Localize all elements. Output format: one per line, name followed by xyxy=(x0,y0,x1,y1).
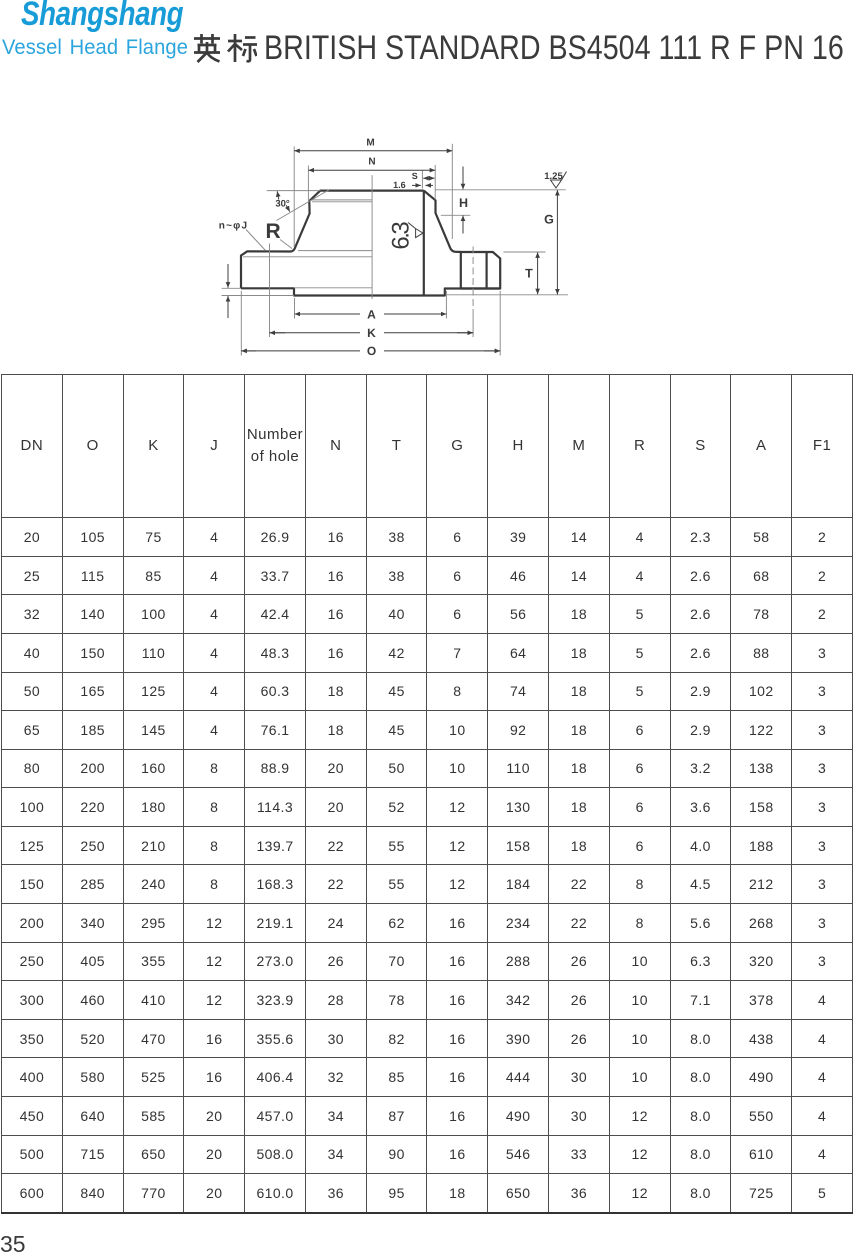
svg-text:N: N xyxy=(368,157,375,168)
svg-text:M: M xyxy=(366,138,374,149)
svg-text:1.6: 1.6 xyxy=(393,180,406,190)
svg-text:O: O xyxy=(367,344,376,358)
svg-text:G: G xyxy=(544,213,554,227)
svg-text:6.3: 6.3 xyxy=(388,222,415,250)
svg-text:30°: 30° xyxy=(275,198,290,209)
svg-text:H: H xyxy=(459,196,468,210)
svg-text:S: S xyxy=(412,171,418,181)
svg-text:K: K xyxy=(367,326,376,340)
svg-text:1.25: 1.25 xyxy=(544,171,563,182)
svg-text:T: T xyxy=(525,267,533,281)
svg-text:R: R xyxy=(266,220,281,243)
svg-text:n~φJ: n~φJ xyxy=(219,220,248,231)
svg-text:A: A xyxy=(367,307,376,321)
